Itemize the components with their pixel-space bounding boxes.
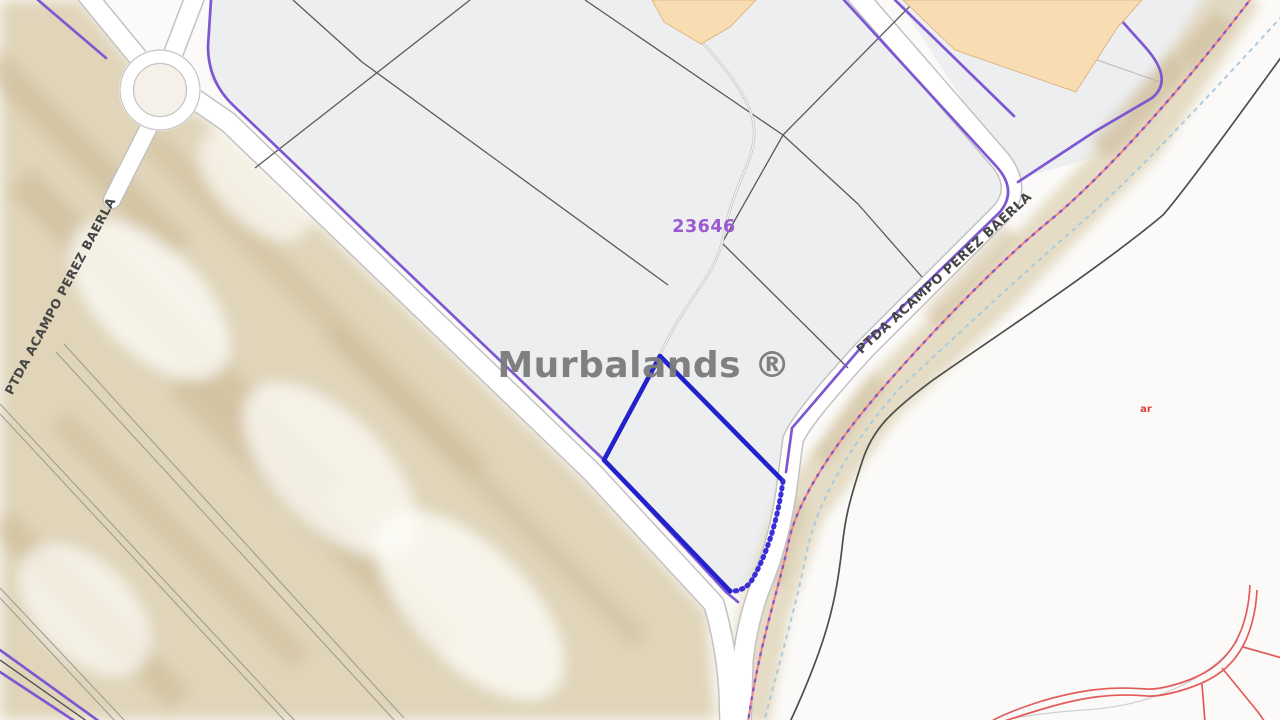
red-parcel-lines xyxy=(990,585,1280,720)
parcel-number-label[interactable]: 23646 xyxy=(672,217,735,237)
roundabout xyxy=(119,49,201,131)
cadastral-map-view[interactable]: 23646 PTDA ACAMPO PEREZ BAERLA PTDA ACAM… xyxy=(0,0,1280,720)
small-red-label: ar xyxy=(1140,404,1152,415)
map-canvas[interactable]: 23646 PTDA ACAMPO PEREZ BAERLA PTDA ACAM… xyxy=(0,0,1280,720)
watermark-text: Murbalands ® xyxy=(497,345,790,386)
